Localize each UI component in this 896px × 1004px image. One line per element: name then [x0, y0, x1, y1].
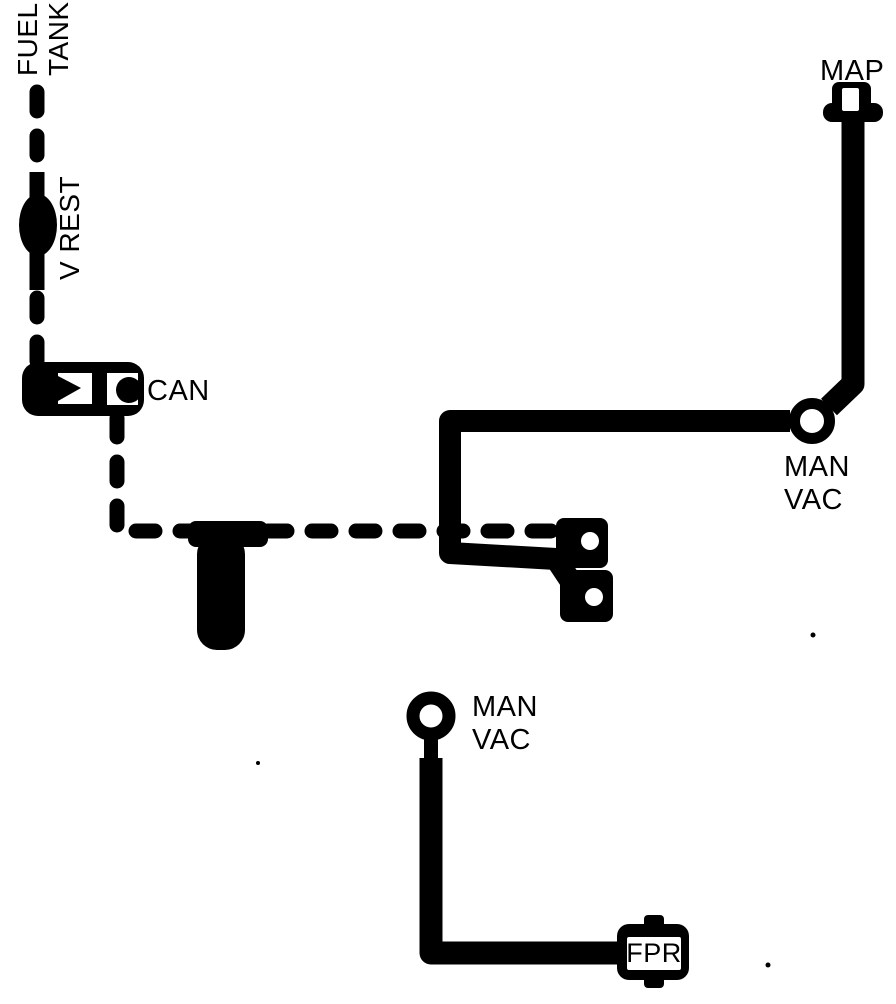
- man-vac-center-label: MAN VAC: [472, 691, 538, 756]
- upper-port-hole: [581, 532, 599, 550]
- artifact-dot: [766, 963, 771, 968]
- canister-port-dot: [116, 377, 142, 403]
- fpr-regulator: FPR: [617, 915, 689, 988]
- tee-junction: [188, 521, 268, 650]
- lower-port-hole: [585, 588, 603, 606]
- fpr-label: FPR: [626, 938, 682, 968]
- man-vac-right-port: [795, 404, 830, 439]
- v-rest-valve: [19, 172, 57, 290]
- artifact-dot: [256, 761, 260, 765]
- can-canister: [22, 362, 144, 416]
- man-vac-center-port: [413, 698, 449, 734]
- tee-stem: [197, 534, 245, 650]
- man-vac-center-label-line2: VAC: [472, 724, 531, 756]
- hose-map-to-manvac: [829, 120, 853, 407]
- hose-manvac-to-throttle-ports: [450, 421, 790, 580]
- man-vac-right-label-line2: VAC: [784, 484, 843, 516]
- v-rest-label: V REST: [54, 176, 85, 280]
- hose-manvac-to-fpr: [431, 758, 618, 953]
- fuel-tank-label-line2: TANK: [43, 1, 74, 76]
- artifact-dot: [811, 633, 816, 638]
- map-label: MAP: [820, 55, 884, 87]
- map-port-hole: [842, 88, 859, 111]
- hose-can-to-throttle-ports: [117, 418, 552, 531]
- man-vac-center-label-line1: MAN: [472, 691, 538, 723]
- map-sensor-port: [823, 82, 883, 122]
- fuel-tank-label: FUEL TANK: [12, 1, 74, 76]
- fuel-tank-label-line1: FUEL: [12, 2, 43, 76]
- man-vac-right-label-line1: MAN: [784, 451, 850, 483]
- vacuum-routing-diagram: FPR FUEL TANK V REST CAN MAP MAN VAC MAN…: [0, 0, 896, 1004]
- diagram-canvas: FPR FUEL TANK V REST CAN MAP MAN VAC MAN…: [0, 0, 896, 1004]
- man-vac-right-label: MAN VAC: [784, 451, 850, 516]
- v-rest-body: [19, 194, 57, 256]
- can-label: CAN: [147, 375, 210, 407]
